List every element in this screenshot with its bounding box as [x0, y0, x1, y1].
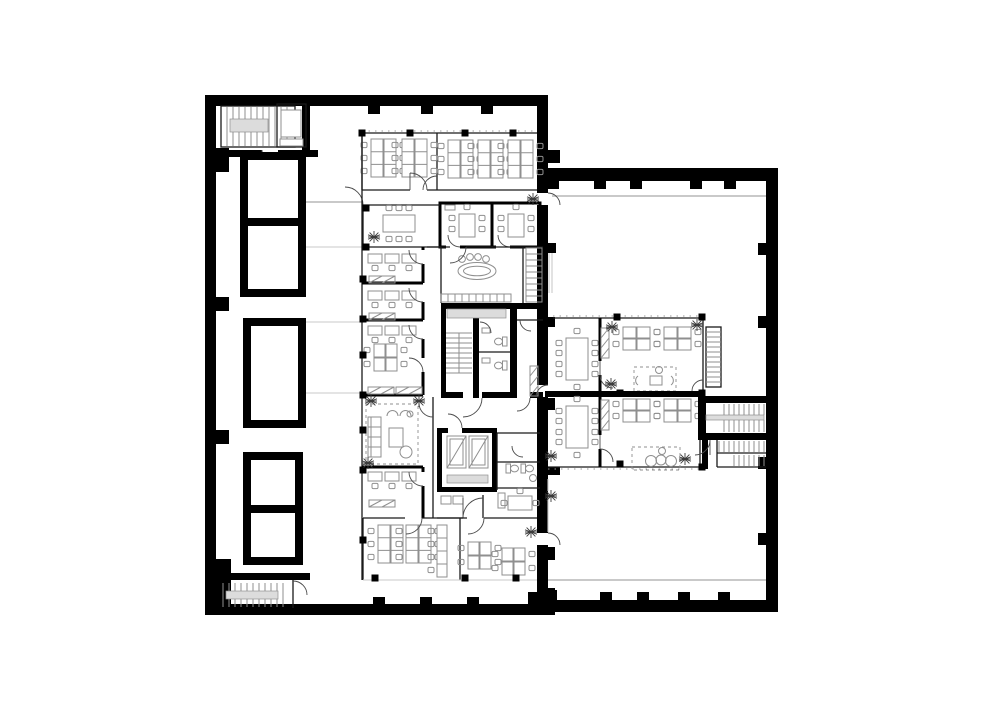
shelf [601, 400, 609, 430]
locker-row [441, 294, 511, 302]
suite-north [553, 316, 721, 391]
plant-icon [606, 321, 618, 333]
suite-ladder-stair [706, 327, 721, 387]
desk-bench [468, 140, 513, 178]
plant-icon [525, 526, 537, 538]
plant-icon [527, 193, 539, 205]
conference-room [345, 187, 440, 247]
core-wc [497, 433, 540, 490]
meeting-room-a [440, 203, 492, 250]
plant-icon [365, 395, 377, 407]
shelf [601, 328, 609, 358]
desk-bench [392, 139, 437, 177]
void-shaft-1 [240, 152, 306, 297]
open-office-south [363, 518, 537, 580]
wardrobe [369, 500, 395, 507]
office-southeast [498, 488, 539, 510]
plant-icon [413, 395, 425, 407]
reception-standing-table [427, 247, 543, 303]
plant-icon [545, 490, 557, 502]
toilet [495, 337, 508, 346]
desk-cluster [492, 548, 535, 575]
floor-plan-page [0, 0, 1000, 707]
plant-icon [691, 319, 703, 331]
desk-cluster [654, 327, 701, 350]
suite-south [548, 396, 701, 470]
toilet [495, 361, 508, 370]
desk-bench [498, 140, 543, 178]
suite-divider-wall [545, 380, 703, 397]
meeting-table [556, 328, 598, 389]
void-shaft-2 [243, 318, 306, 428]
toilet [521, 464, 534, 473]
lounge-west [366, 404, 418, 464]
plant-icon [368, 231, 380, 243]
plant-icon [679, 453, 691, 465]
floor-plan-canvas [0, 0, 1000, 707]
desk-cluster [654, 399, 701, 422]
desk-row [368, 326, 416, 343]
desk-cluster [613, 399, 660, 422]
desk-row [368, 254, 416, 271]
toilet [506, 464, 519, 473]
open-office-north [361, 131, 543, 190]
core-stairwell [441, 303, 543, 417]
wardrobe [396, 387, 422, 394]
cellular-offices [362, 133, 423, 580]
desk-row [368, 291, 416, 308]
wardrobe [368, 387, 394, 394]
desk-bench [438, 140, 483, 178]
desk-bench [361, 139, 406, 177]
desk-cluster [613, 327, 660, 350]
desk-cluster [364, 344, 407, 371]
plant-icon [605, 378, 617, 390]
column-dots [359, 130, 706, 582]
elevator [277, 95, 310, 157]
plant-icon [362, 457, 374, 469]
service-core [419, 397, 540, 518]
meeting-room-b [492, 203, 540, 250]
meeting-table [556, 396, 598, 457]
suite-north-lounge [634, 367, 676, 392]
kitchenette [437, 495, 483, 518]
plant-icon [545, 450, 557, 462]
void-shaft-3 [243, 452, 303, 565]
